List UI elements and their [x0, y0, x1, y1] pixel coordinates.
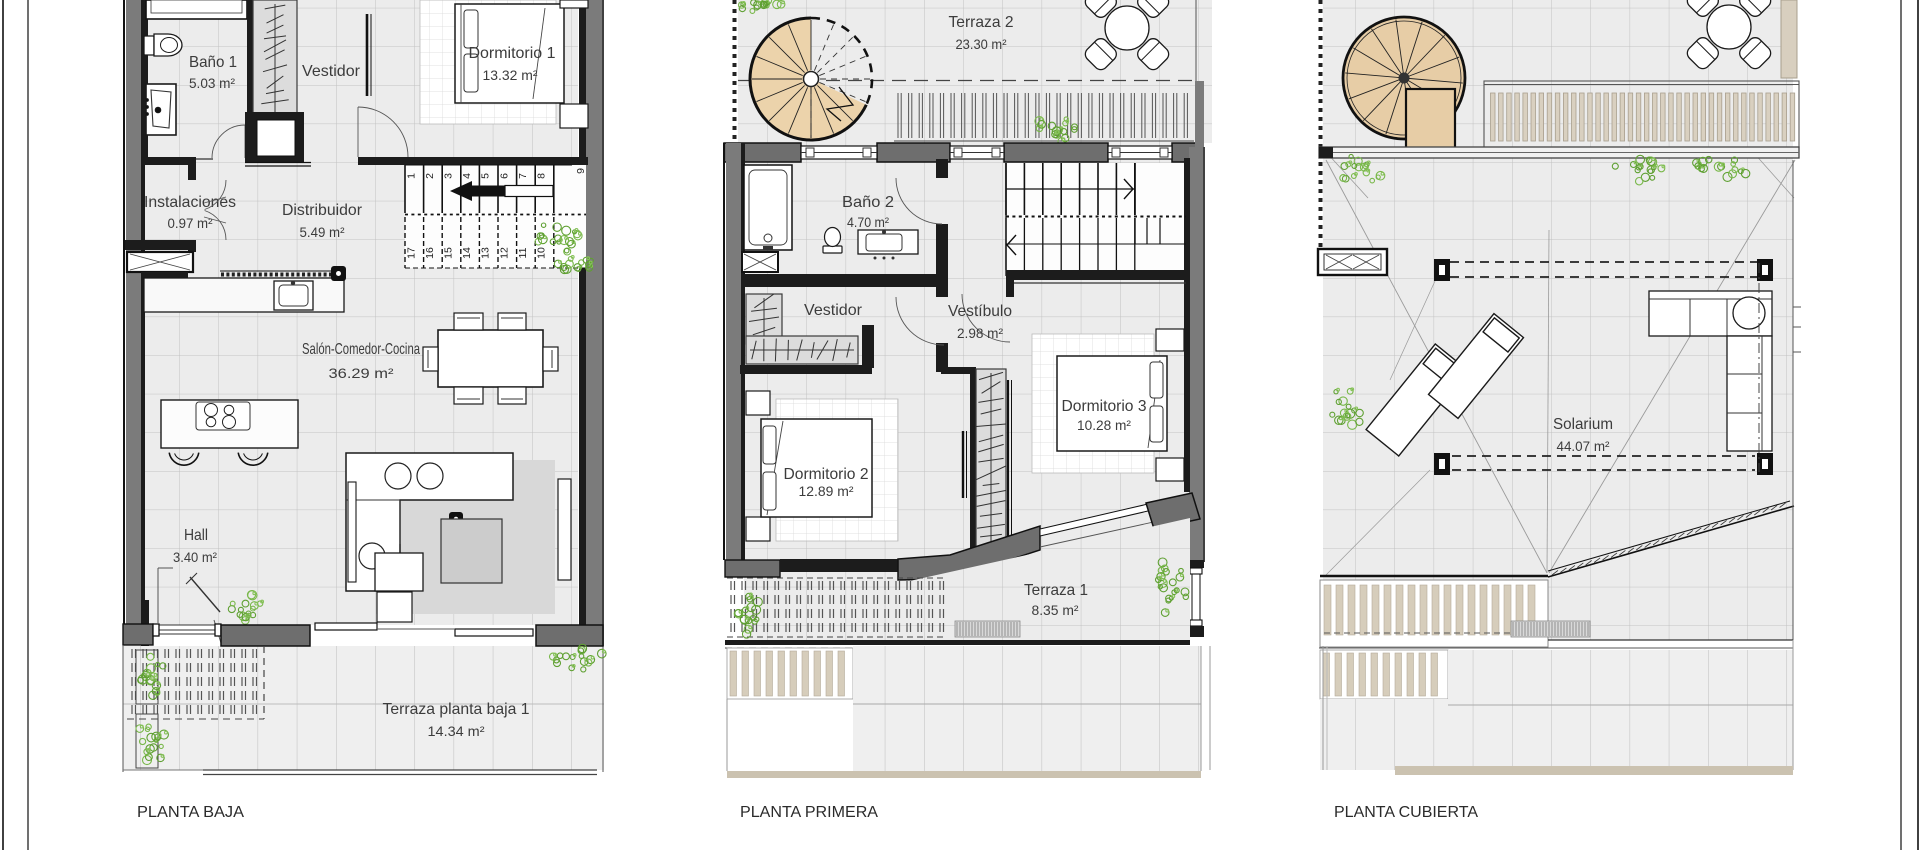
svg-text:Dormitorio 2: Dormitorio 2: [784, 466, 869, 483]
svg-text:Terraza planta baja 1: Terraza planta baja 1: [383, 701, 530, 718]
svg-text:11: 11: [517, 247, 529, 258]
svg-text:4: 4: [461, 173, 473, 179]
svg-text:PLANTA PRIMERA: PLANTA PRIMERA: [740, 804, 879, 821]
svg-text:Distribuidor: Distribuidor: [282, 202, 363, 219]
svg-text:2.98 m²: 2.98 m²: [957, 325, 1003, 341]
svg-text:PLANTA BAJA: PLANTA BAJA: [137, 804, 245, 821]
svg-text:44.07 m²: 44.07 m²: [1557, 439, 1610, 454]
svg-text:1: 1: [405, 173, 417, 179]
svg-text:Hall: Hall: [184, 527, 208, 544]
svg-text:13.32 m²: 13.32 m²: [483, 67, 538, 83]
svg-text:23.30 m²: 23.30 m²: [956, 36, 1007, 52]
svg-text:8: 8: [536, 173, 548, 179]
svg-text:17: 17: [405, 247, 417, 259]
svg-text:Baño 1: Baño 1: [189, 54, 237, 71]
svg-text:14.34 m²: 14.34 m²: [428, 723, 485, 739]
svg-text:Dormitorio 3: Dormitorio 3: [1062, 398, 1147, 415]
svg-text:3.40 m²: 3.40 m²: [173, 549, 217, 565]
svg-text:10: 10: [536, 247, 548, 259]
svg-text:12: 12: [498, 247, 510, 259]
svg-text:Dormitorio 1: Dormitorio 1: [469, 45, 556, 62]
svg-text:Salón-Comedor-Cocina: Salón-Comedor-Cocina: [302, 341, 420, 358]
svg-text:10.28 m²: 10.28 m²: [1077, 418, 1132, 433]
svg-text:13: 13: [480, 247, 492, 259]
svg-text:5.49 m²: 5.49 m²: [300, 224, 345, 240]
svg-text:4.70 m²: 4.70 m²: [847, 214, 889, 230]
svg-text:Baño 2: Baño 2: [842, 194, 894, 211]
svg-text:5: 5: [480, 173, 492, 179]
svg-text:Solarium: Solarium: [1553, 416, 1613, 433]
svg-text:36.29 m²: 36.29 m²: [329, 365, 394, 381]
svg-text:Vestidor: Vestidor: [302, 63, 361, 80]
svg-text:3: 3: [443, 173, 455, 179]
svg-text:Terraza 1: Terraza 1: [1024, 582, 1088, 599]
svg-text:8.35 m²: 8.35 m²: [1032, 602, 1079, 618]
svg-text:6: 6: [498, 173, 510, 179]
svg-text:9: 9: [575, 168, 587, 174]
svg-text:14: 14: [461, 247, 473, 259]
svg-text:16: 16: [424, 247, 436, 259]
svg-text:Instalaciones: Instalaciones: [144, 194, 236, 211]
svg-text:15: 15: [443, 247, 455, 259]
svg-text:2: 2: [424, 173, 436, 179]
svg-text:12.89 m²: 12.89 m²: [799, 484, 855, 499]
svg-text:Vestíbulo: Vestíbulo: [948, 303, 1012, 320]
svg-text:Terraza 2: Terraza 2: [949, 14, 1014, 31]
svg-text:5.03 m²: 5.03 m²: [189, 75, 235, 91]
svg-text:PLANTA CUBIERTA: PLANTA CUBIERTA: [1334, 804, 1479, 821]
svg-text:Vestidor: Vestidor: [804, 302, 863, 319]
svg-text:7: 7: [517, 173, 529, 179]
